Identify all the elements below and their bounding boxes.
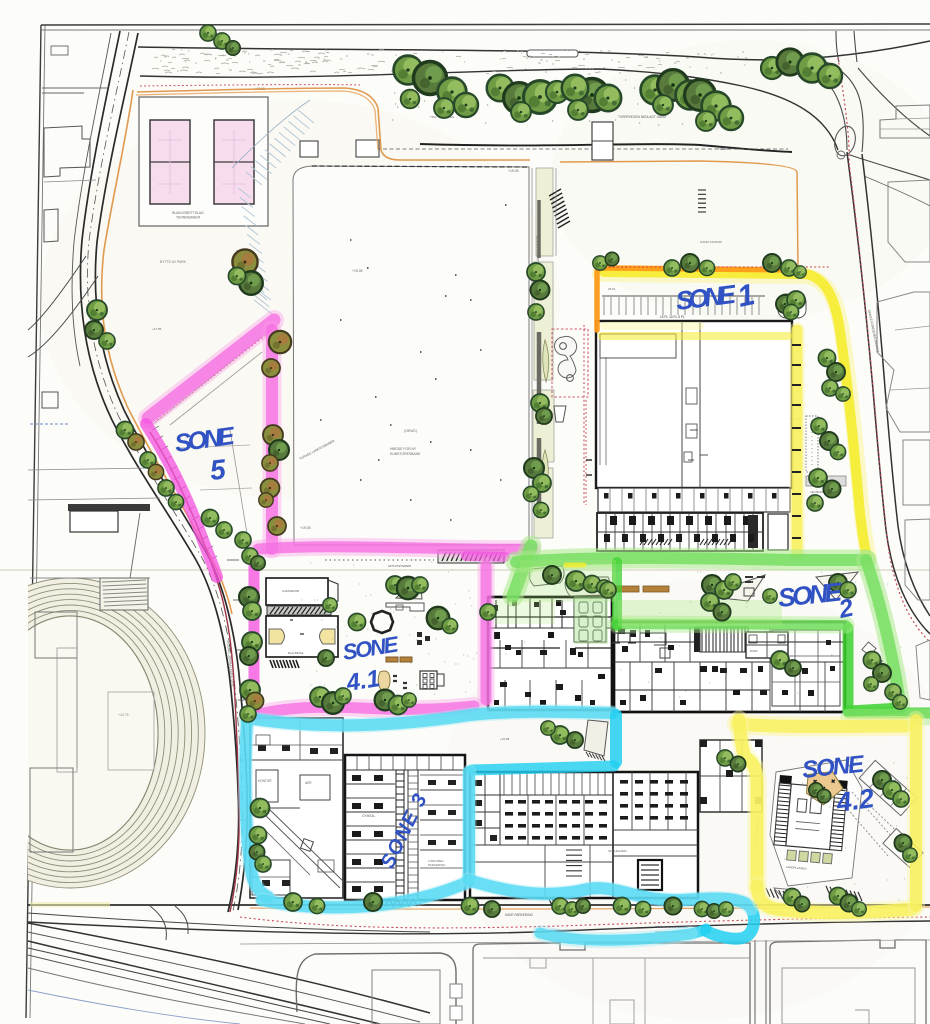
svg-text:VENTEOMR: VENTEOMR <box>810 490 825 494</box>
svg-text:+43.75: +43.75 <box>118 713 129 717</box>
svg-text:15 PL 15 PL 8 PL: 15 PL 15 PL 8 PL <box>660 315 685 319</box>
svg-text:+19.05: +19.05 <box>508 169 519 173</box>
svg-text:BALLBINGE: BALLBINGE <box>288 651 304 655</box>
svg-text:BORD: BORD <box>750 649 758 653</box>
svg-text:BUAN IDRETTSLAG: BUAN IDRETTSLAG <box>172 211 204 215</box>
svg-text:KUNSTGRESBANE: KUNSTGRESBANE <box>390 452 421 456</box>
svg-text:HAVE PARKERING: HAVE PARKERING <box>505 913 533 917</box>
svg-text:+19.05: +19.05 <box>300 526 311 530</box>
svg-text:TENNISBANER: TENNISBANER <box>176 216 201 220</box>
svg-text:+17.85: +17.85 <box>152 327 162 331</box>
svg-text:PARKERING: PARKERING <box>428 863 446 867</box>
svg-text:GYMSAL: GYMSAL <box>362 814 376 818</box>
svg-text:BYTTE AV PARK: BYTTE AV PARK <box>160 260 187 264</box>
svg-text:4.2: 4.2 <box>834 783 876 818</box>
svg-text:+16.35: +16.35 <box>718 147 728 151</box>
svg-text:TVERRVEGEN NEDLAGT GANG: TVERRVEGEN NEDLAGT GANG <box>618 115 667 119</box>
svg-text:(GRUS): (GRUS) <box>404 429 417 433</box>
svg-text:GAND STRAND: GAND STRAND <box>700 240 723 244</box>
svg-text:26 PL: 26 PL <box>608 287 616 291</box>
svg-text:GARDEROB: GARDEROB <box>282 589 299 593</box>
svg-text:HØGDE FOR NY: HØGDE FOR NY <box>390 447 417 451</box>
svg-text:AKTIVITETSPARK: AKTIVITETSPARK <box>388 564 412 568</box>
svg-text:+15.85: +15.85 <box>500 737 510 741</box>
svg-text:+19.05: +19.05 <box>352 269 363 273</box>
svg-text:4.1: 4.1 <box>344 665 382 697</box>
svg-text:SKOLEGÅRD: SKOLEGÅRD <box>608 848 628 853</box>
svg-text:AER: AER <box>305 781 312 785</box>
svg-text:KONTOR: KONTOR <box>258 779 272 783</box>
